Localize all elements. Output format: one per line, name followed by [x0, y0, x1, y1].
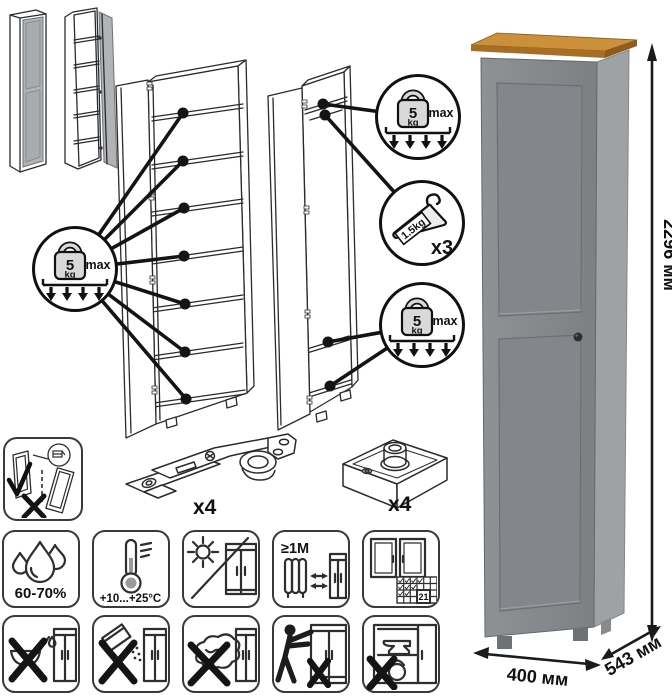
- weight-5kg-icon: 5 kg: [402, 301, 432, 337]
- wardrobe-glyph: [330, 554, 346, 598]
- no-drag-icon: [272, 615, 350, 693]
- humidity-label: 60-70%: [15, 585, 67, 602]
- tilting-cabinet: [46, 468, 74, 513]
- cabinet-foot: [573, 628, 588, 641]
- load-unit: kg: [407, 118, 418, 129]
- person-icon: [278, 625, 311, 682]
- height-label: 2296 мм: [660, 219, 672, 291]
- x-mark: [102, 643, 134, 681]
- load-unit: kg: [64, 270, 75, 281]
- spacing-arrows: [310, 573, 328, 589]
- bottom-load-badge: 5 kg max: [379, 282, 465, 368]
- dimension-depth: 543 мм: [601, 626, 665, 680]
- cabinet-foot: [497, 636, 512, 649]
- weight-5kg-icon: 5 kg: [398, 93, 428, 129]
- load-arrows: [386, 127, 450, 149]
- ventilation-icon: 21: [362, 530, 440, 608]
- load-unit: kg: [411, 326, 422, 337]
- wardrobe-glyph: [54, 629, 76, 681]
- wardrobe-render: 2296 мм 400 мм 543 мм: [455, 15, 672, 700]
- wardrobe-glyph: [144, 629, 166, 681]
- wardrobe-closed-thumbnail: [10, 10, 46, 172]
- dimension-height: 2296 мм: [647, 43, 672, 643]
- instruction-sheet: 2296 мм 400 мм 543 мм 5 kg max: [0, 0, 672, 700]
- hanger-count-label: x3: [431, 237, 453, 259]
- no-overload-icon: [362, 615, 440, 693]
- load-arrows: [390, 335, 454, 357]
- load-arrows: [43, 279, 107, 301]
- x-mark: [310, 661, 328, 685]
- weight-5kg-icon: 5 kg: [55, 245, 85, 281]
- anvil-icon: [384, 641, 410, 654]
- shelf-load-badge: 5 kg max: [32, 226, 118, 312]
- wardrobe-glyph: [226, 544, 256, 594]
- distance-label: ≥1M: [281, 541, 309, 557]
- wall-bracket-detail: [48, 444, 70, 466]
- foot-count-label: x4: [388, 494, 411, 515]
- hinge-count-label: x4: [193, 497, 216, 518]
- no-powder-icon: [92, 615, 170, 693]
- x-mark: [24, 496, 44, 517]
- no-abrasive-icon: [182, 615, 260, 693]
- wardrobe-open-thumbnail: [65, 8, 117, 169]
- hanger-load-badge: 1.5kg x3: [379, 180, 465, 266]
- temperature-label: +10...+25°C: [100, 593, 162, 605]
- wood-top: [471, 33, 637, 58]
- width-label: 400 мм: [506, 664, 569, 690]
- no-liquid-icon: [2, 615, 80, 693]
- load-max-label: max: [85, 258, 110, 272]
- no-sunlight-icon: [182, 530, 260, 608]
- load-max-label: max: [428, 106, 453, 120]
- thermometer-icon: +10...+25°C: [92, 530, 170, 608]
- humidity-icon: 60-70%: [2, 530, 80, 608]
- sun-icon: [188, 537, 218, 567]
- calendar-day-label: 21: [418, 592, 428, 602]
- door-knob: [574, 333, 583, 342]
- calendar-icon: 21: [397, 577, 437, 603]
- heat-distance-icon: ≥1M: [272, 530, 350, 608]
- window-icon: [371, 539, 425, 577]
- dimension-width: 400 мм: [473, 647, 601, 690]
- anti-tip-icon: [3, 437, 83, 521]
- load-max-label: max: [432, 314, 457, 328]
- cabinet-body: [481, 50, 629, 649]
- top-shelf-load-badge: 5 kg max: [375, 74, 461, 160]
- radiator-icon: [285, 559, 306, 597]
